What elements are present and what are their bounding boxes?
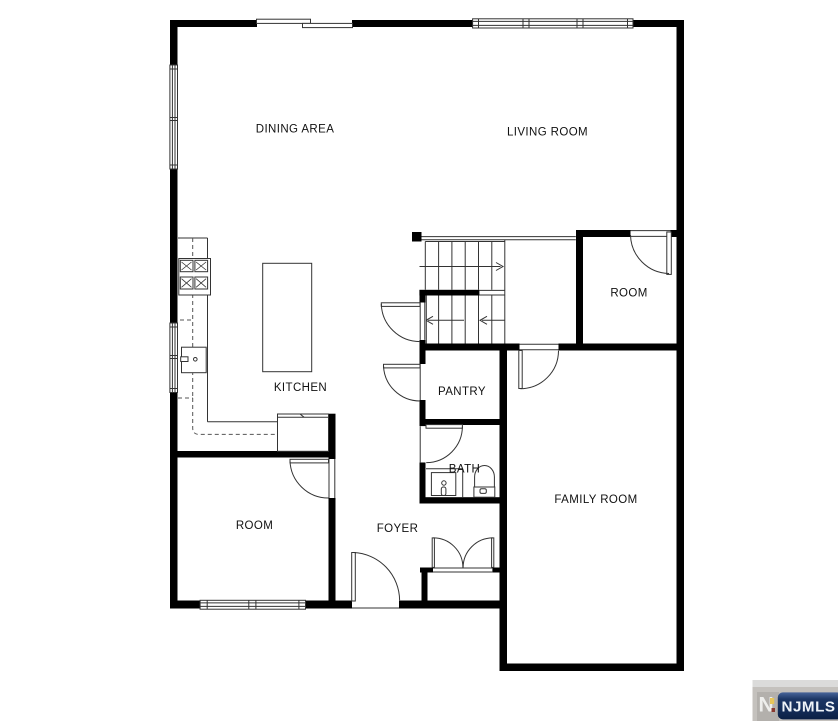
svg-text:PANTRY: PANTRY (438, 386, 486, 398)
svg-text:FOYER: FOYER (377, 523, 419, 535)
svg-text:ROOM: ROOM (236, 520, 273, 532)
svg-text:DINING AREA: DINING AREA (256, 124, 335, 136)
svg-text:KITCHEN: KITCHEN (274, 382, 327, 394)
svg-text:LIVING ROOM: LIVING ROOM (507, 127, 588, 139)
svg-text:FAMILY ROOM: FAMILY ROOM (554, 494, 637, 506)
svg-text:N: N (759, 694, 774, 717)
svg-text:NJMLS: NJMLS (782, 699, 836, 716)
svg-text:BATH: BATH (449, 464, 480, 476)
svg-text:ROOM: ROOM (610, 288, 647, 300)
